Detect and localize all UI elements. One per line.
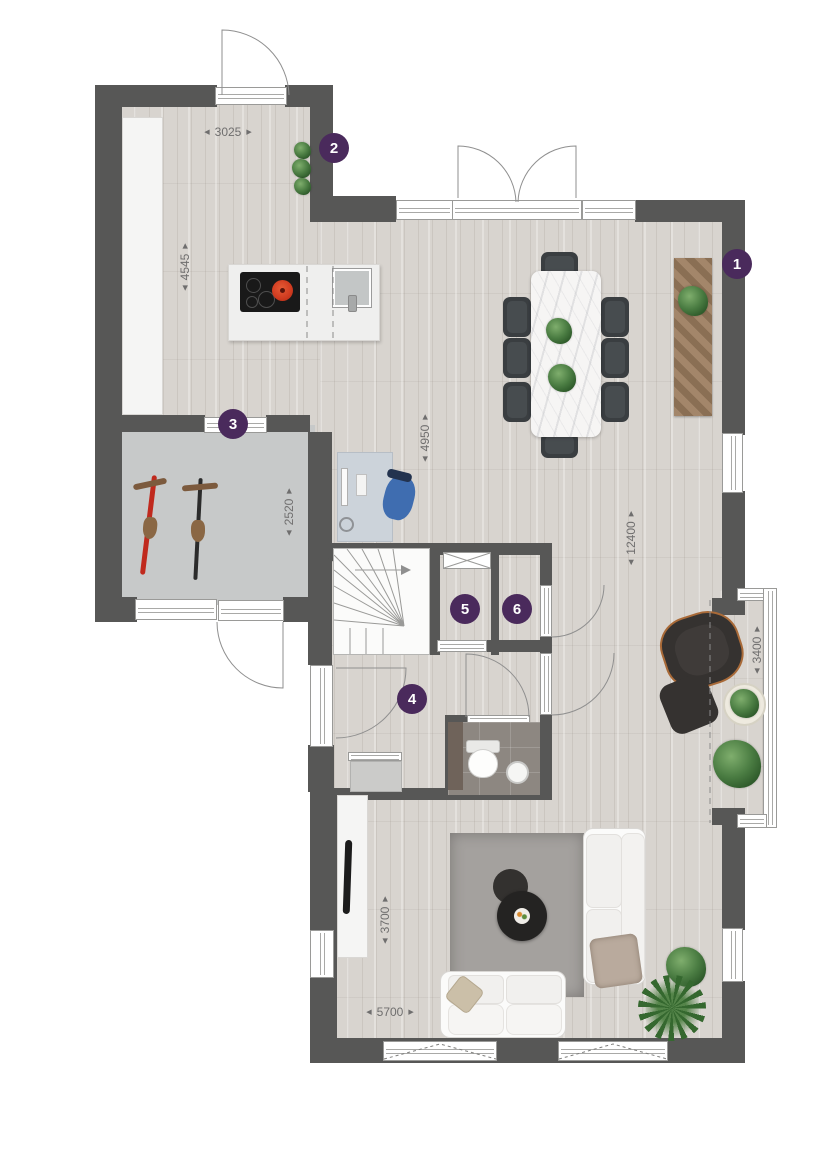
dim-arrow-left: ◀	[382, 938, 389, 943]
wall-left-outer	[95, 85, 122, 622]
desk-keyboard	[356, 474, 367, 496]
dim-value: 3700	[378, 907, 392, 934]
dimension-bay-span: ◀ 3400 ▶	[749, 610, 765, 690]
wall-bay-stub-bottom	[712, 808, 722, 825]
wall-hall-left-lower	[308, 745, 334, 792]
hall-cabinet-window	[348, 752, 402, 761]
dimension-living-depth: ◀ 3700 ▶	[377, 880, 393, 960]
dim-arrow-left: ◀	[182, 285, 189, 290]
room-marker-1: 1	[722, 249, 752, 279]
closet6-door-leaf	[540, 585, 552, 637]
room-marker-6: 6	[502, 594, 532, 624]
dim-arrow-left: ◀	[628, 560, 635, 565]
dim-value: 4545	[178, 254, 192, 281]
dining-chair	[503, 382, 531, 422]
dining-table-plant	[548, 364, 576, 392]
dimension-storage-depth: ◀ 2520 ▶	[281, 472, 297, 552]
hall-cabinet	[350, 761, 402, 792]
kitchen-plant	[294, 142, 311, 159]
sofa-bottom-back	[506, 1004, 562, 1035]
wall-bottom	[310, 1038, 745, 1063]
room-marker-label: 5	[461, 601, 469, 618]
stairs	[333, 548, 430, 655]
french-door-left-swing	[458, 146, 516, 202]
blanket	[589, 933, 643, 989]
burner	[246, 278, 261, 293]
dim-arrow-right: ▶	[246, 129, 251, 136]
sink-faucet	[348, 295, 357, 312]
room-marker-label: 6	[513, 601, 521, 618]
room-marker-2: 2	[319, 133, 349, 163]
dining-chair	[601, 297, 629, 337]
dimension-house-depth: ◀ 12400 ▶	[623, 493, 639, 583]
meter-cupboard-symbol	[443, 552, 491, 569]
toilet-bowl	[468, 749, 498, 778]
dining-table-plant	[546, 318, 572, 344]
wall-storage-top-a	[95, 415, 205, 432]
living-bottom-window-left	[383, 1041, 497, 1061]
wall-kitchen-corner-horizontal	[310, 196, 396, 222]
dim-arrow-right: ▶	[182, 243, 189, 248]
storage-window	[135, 599, 217, 620]
sofa-bottom-cushion	[506, 975, 562, 1004]
dim-arrow-right: ▶	[628, 511, 635, 516]
french-door-right-swing	[518, 146, 576, 202]
dim-arrow-left: ◀	[422, 456, 429, 461]
wall-right-upper	[722, 208, 745, 435]
wall-storage-bottom-a	[95, 597, 137, 622]
storage-exterior-door-opening	[218, 600, 284, 621]
front-door-opening	[310, 665, 333, 747]
bay-window-bottom	[737, 814, 767, 828]
kitchen-plant	[292, 159, 311, 178]
kitchen-entry-door-opening	[215, 87, 287, 105]
dimension-hall-span: ◀ 4950 ▶	[417, 398, 433, 478]
dining-chair	[503, 338, 531, 378]
sideboard-plant	[678, 286, 708, 316]
closet5-door-opening	[437, 640, 487, 652]
dim-value: 5700	[377, 1005, 404, 1019]
dim-arrow-right: ▶	[382, 896, 389, 901]
pot-lid-knob	[280, 288, 285, 293]
dim-arrow-left: ◀	[204, 129, 209, 136]
dim-arrow-right: ▶	[754, 626, 761, 631]
dining-window-left	[396, 200, 453, 220]
dining-chair	[503, 297, 531, 337]
dim-arrow-left: ◀	[754, 668, 761, 673]
dim-value: 12400	[624, 521, 638, 554]
dining-chair	[601, 338, 629, 378]
room-marker-4: 4	[397, 684, 427, 714]
wc-sink	[506, 761, 529, 784]
kitchen-tall-cabinets	[122, 117, 163, 415]
wc-vanity	[448, 722, 463, 790]
side-table-plant	[730, 689, 759, 718]
living-bottom-window-right	[558, 1041, 668, 1061]
storage-exterior-door-swing	[217, 622, 283, 688]
desk-lamp	[339, 517, 354, 532]
hall-door-leaf	[540, 653, 552, 715]
tv-console	[337, 795, 368, 958]
dining-chair	[601, 382, 629, 422]
kitchen-plant	[294, 178, 311, 195]
dimension-kitchen-width: ◀ 3025 ▶	[188, 124, 268, 140]
dim-arrow-right: ▶	[286, 488, 293, 493]
dining-window-right	[582, 200, 636, 220]
living-side-window	[722, 928, 743, 982]
floor-plan-page: { "plan_type": "ground-floor-plan", "col…	[0, 0, 827, 1169]
sideboard	[674, 258, 712, 416]
wall-storage-top-b	[266, 415, 310, 432]
room-marker-label: 1	[733, 256, 741, 273]
desk-monitor	[341, 468, 348, 506]
serving-plate	[514, 908, 530, 924]
dining-table	[531, 271, 601, 437]
dim-arrow-left: ◀	[286, 530, 293, 535]
dim-value: 3400	[750, 637, 764, 664]
room-marker-3: 3	[218, 409, 248, 439]
dim-arrow-left: ◀	[366, 1009, 371, 1016]
room-marker-5: 5	[450, 594, 480, 624]
dimension-kitchen-depth: ◀ 4545 ▶	[177, 227, 193, 307]
dimension-living-width: ◀ 5700 ▶	[350, 1004, 430, 1020]
sofa-right-cushion	[586, 834, 622, 908]
dim-arrow-right: ▶	[408, 1009, 413, 1016]
dim-value: 3025	[215, 125, 242, 139]
sofa-bottom-back	[448, 1004, 504, 1035]
dim-arrow-right: ▶	[422, 414, 429, 419]
room-marker-label: 4	[408, 691, 416, 708]
wall-closet-divider	[491, 543, 499, 655]
burner	[246, 296, 258, 308]
living-left-window	[310, 930, 334, 978]
dining-french-doors-frame	[452, 200, 582, 220]
wall-closet-right-a	[540, 543, 552, 585]
dim-value: 4950	[418, 425, 432, 452]
room-marker-label: 2	[330, 140, 338, 157]
wall-closet-bottom-b	[487, 640, 550, 652]
bicycle-black-saddle	[191, 520, 205, 542]
living-palm-plant	[638, 975, 706, 1041]
kitchen-entry-door-swing	[222, 30, 289, 95]
wall-hall-left-upper	[308, 432, 332, 665]
room-marker-label: 3	[229, 416, 237, 433]
wall-storage-bottom-b	[283, 597, 310, 622]
dim-value: 2520	[282, 499, 296, 526]
wall-living-left	[310, 790, 337, 1038]
dining-side-window	[722, 433, 743, 493]
